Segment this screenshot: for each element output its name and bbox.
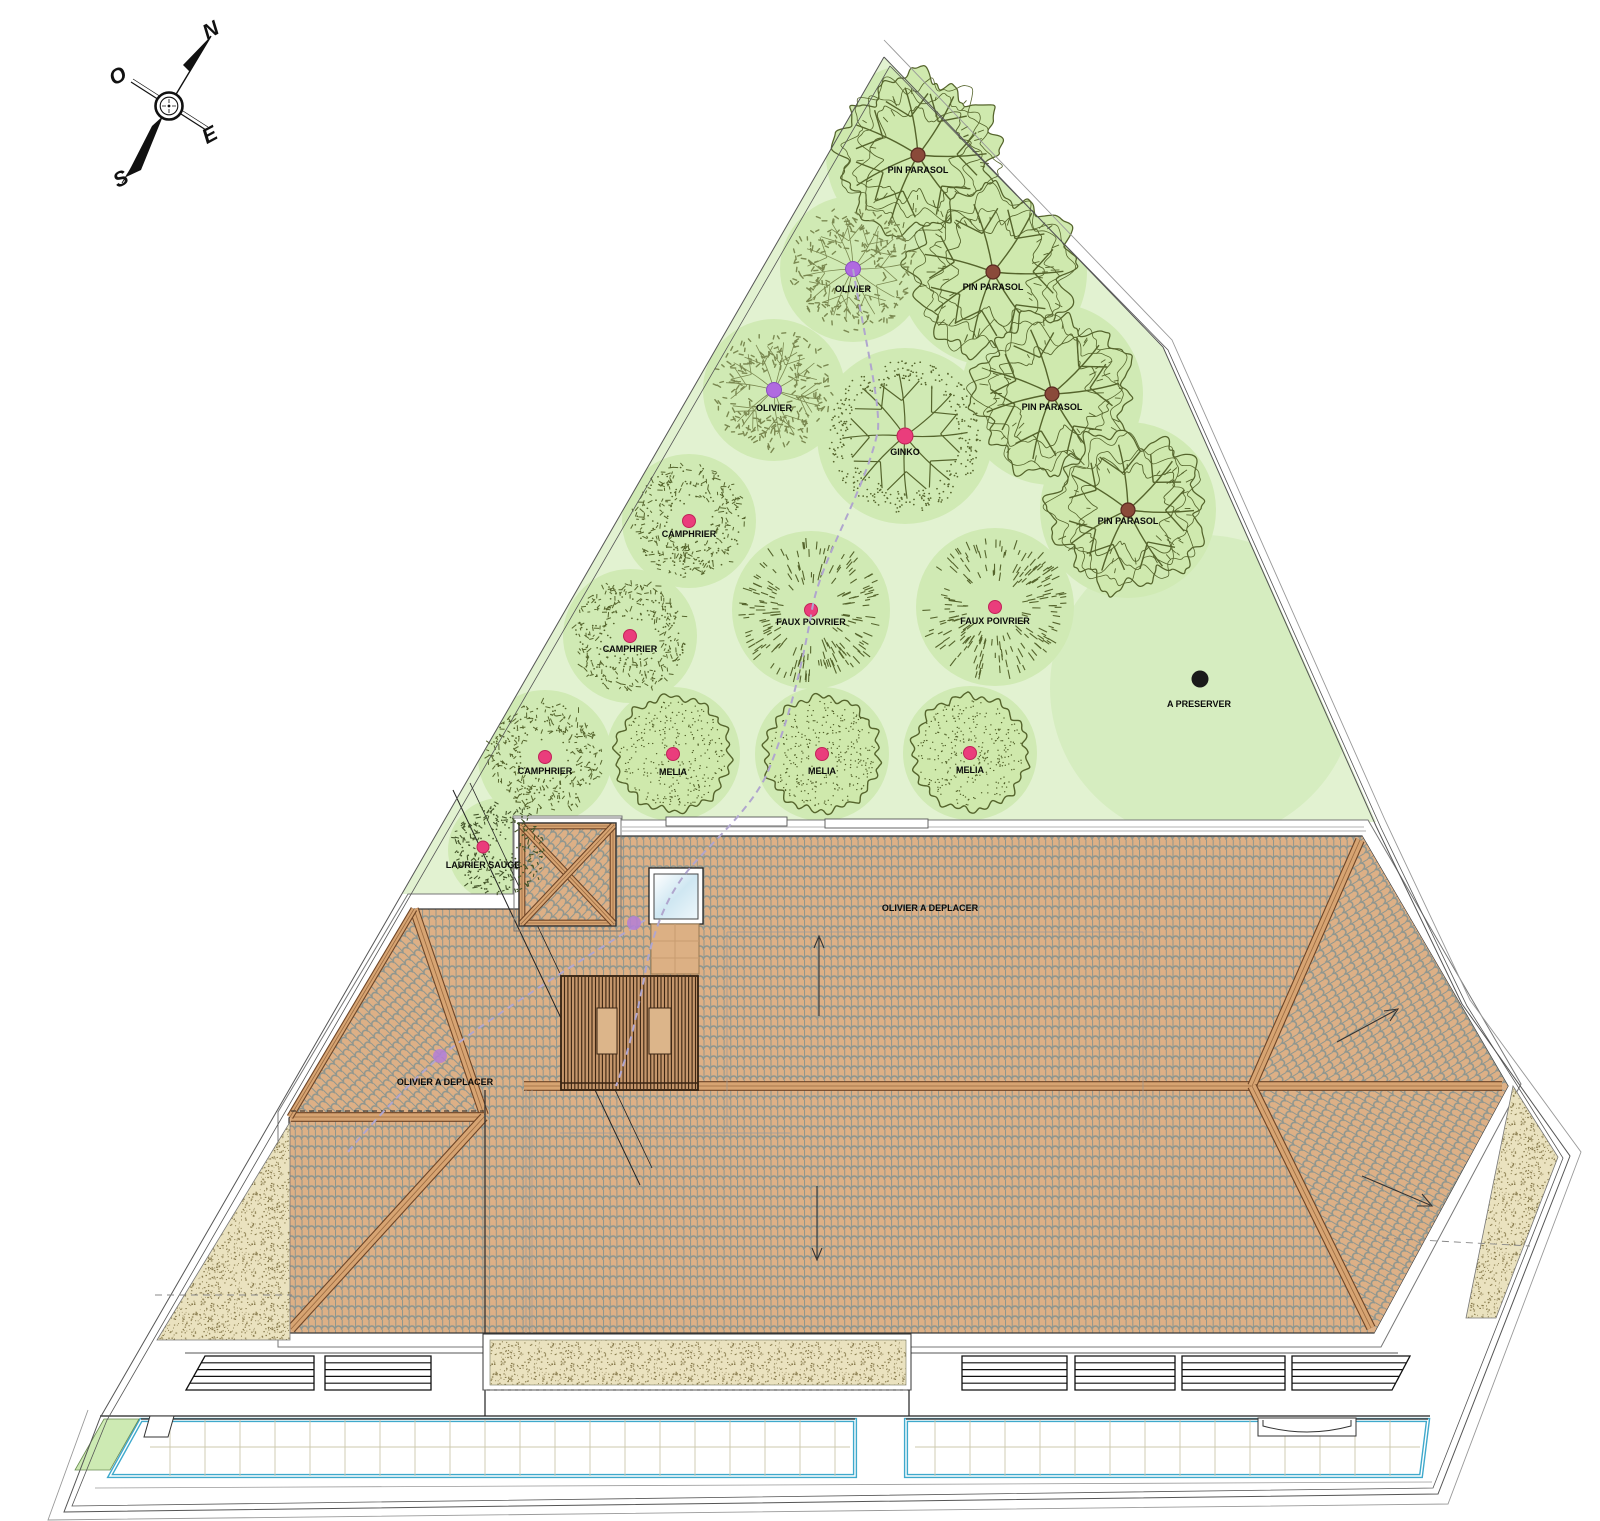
svg-text:LAURIER SAUGE: LAURIER SAUGE [446,860,521,870]
svg-text:OLIVIER A DEPLACER: OLIVIER A DEPLACER [397,1077,494,1087]
svg-text:MELIA: MELIA [659,767,687,777]
svg-text:PIN PARASOL: PIN PARASOL [888,165,949,175]
svg-text:MELIA: MELIA [956,765,984,775]
svg-text:CAMPHRIER: CAMPHRIER [518,766,573,776]
svg-text:A PRESERVER: A PRESERVER [1167,699,1232,709]
svg-text:OLIVIER A DEPLACER: OLIVIER A DEPLACER [882,903,979,913]
svg-text:CAMPHRIER: CAMPHRIER [603,644,658,654]
svg-text:PIN PARASOL: PIN PARASOL [1098,516,1159,526]
svg-text:PIN PARASOL: PIN PARASOL [963,282,1024,292]
svg-text:OLIVIER: OLIVIER [756,403,793,413]
svg-text:OLIVIER: OLIVIER [835,284,872,294]
svg-text:GINKO: GINKO [890,447,920,457]
svg-text:MELIA: MELIA [808,766,836,776]
svg-text:PIN PARASOL: PIN PARASOL [1022,402,1083,412]
svg-text:FAUX POIVRIER: FAUX POIVRIER [960,616,1030,626]
svg-text:CAMPHRIER: CAMPHRIER [662,529,717,539]
